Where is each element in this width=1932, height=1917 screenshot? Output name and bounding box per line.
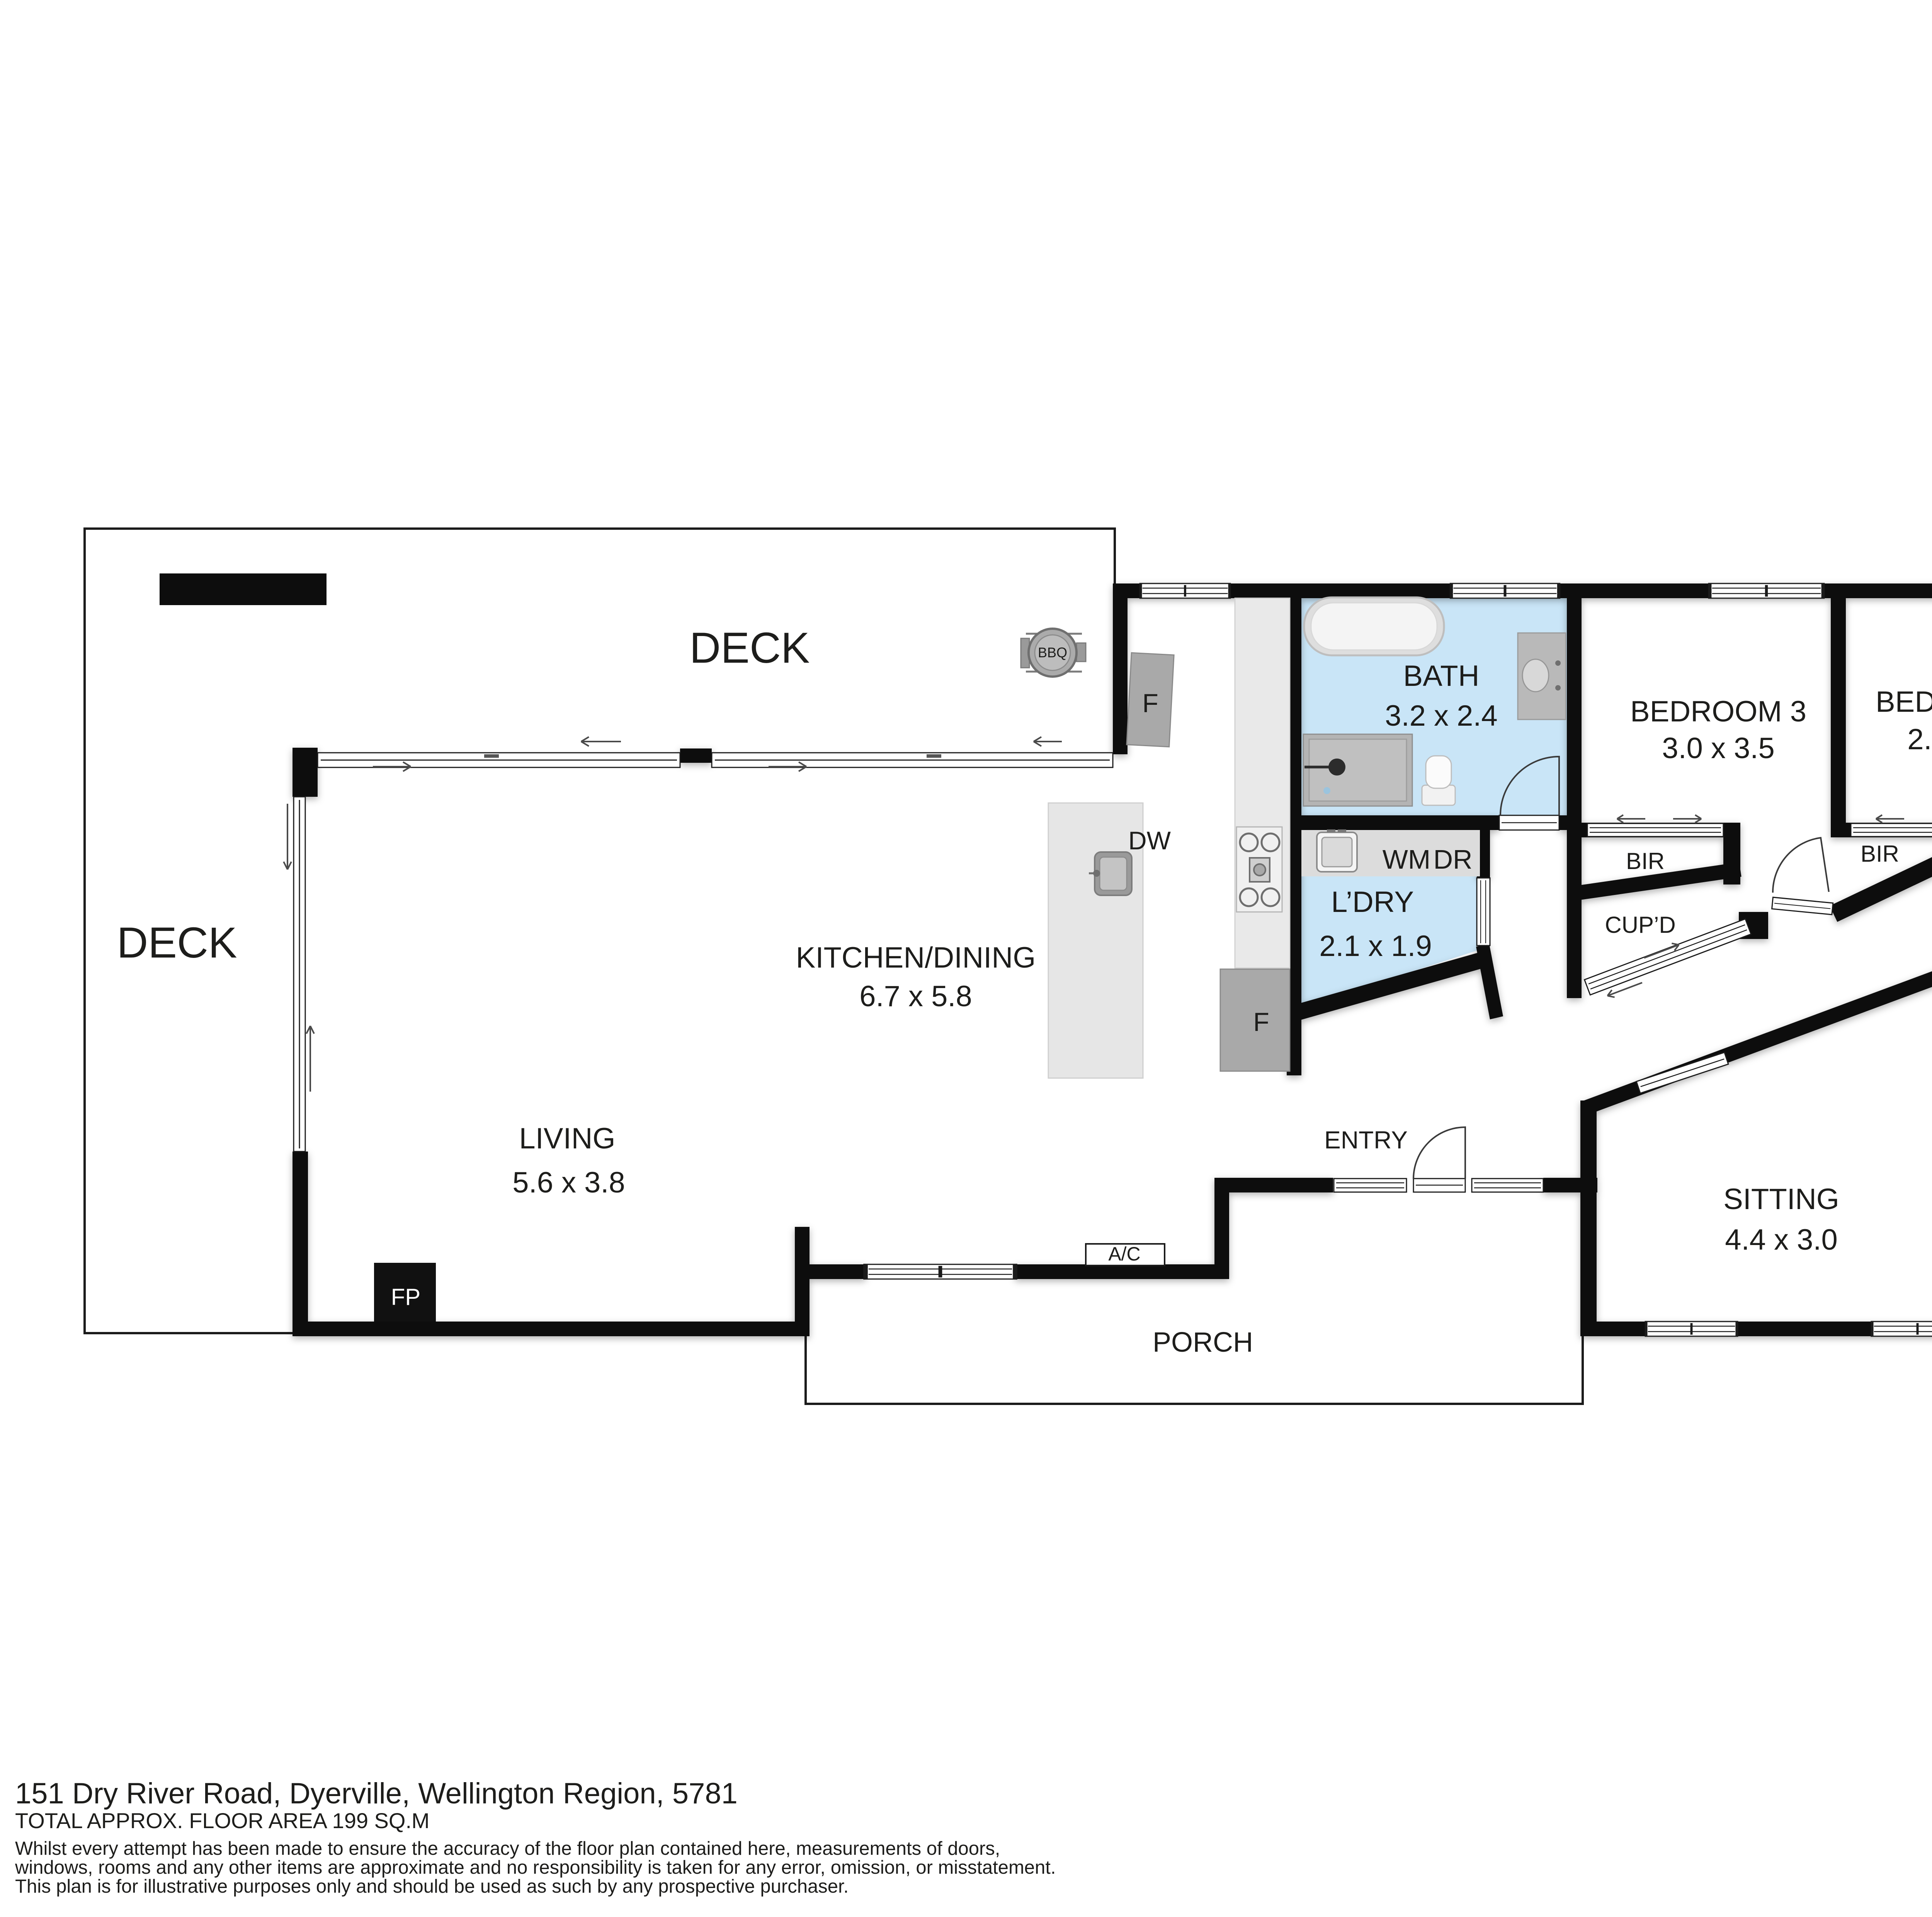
svg-text:CUP’D: CUP’D [1605, 912, 1675, 938]
svg-text:DECK: DECK [117, 919, 237, 967]
svg-text:3.2 x 2.4: 3.2 x 2.4 [1385, 699, 1498, 732]
svg-text:4.4 x 3.0: 4.4 x 3.0 [1725, 1223, 1838, 1256]
svg-text:2.7 x 2.9: 2.7 x 2.9 [1907, 723, 1932, 756]
svg-text:DECK: DECK [689, 624, 810, 672]
svg-text:A/C: A/C [1108, 1243, 1140, 1265]
svg-text:WM: WM [1383, 844, 1430, 874]
svg-text:DW: DW [1128, 826, 1171, 855]
svg-text:BEDROOM 3: BEDROOM 3 [1630, 695, 1806, 728]
svg-text:Whilst every attempt has been: Whilst every attempt has been made to en… [15, 1838, 1000, 1859]
svg-text:TOTAL APPROX. FLOOR AREA 199 S: TOTAL APPROX. FLOOR AREA 199 SQ.M [15, 1808, 430, 1833]
svg-text:BIR: BIR [1626, 848, 1665, 874]
svg-text:KITCHEN/DINING: KITCHEN/DINING [796, 941, 1036, 974]
svg-text:FP: FP [391, 1284, 421, 1310]
svg-text:F: F [1142, 689, 1158, 718]
svg-text:F: F [1253, 1007, 1269, 1037]
svg-text:BEDROOM 4: BEDROOM 4 [1876, 685, 1932, 718]
svg-text:SITTING: SITTING [1723, 1183, 1839, 1216]
svg-text:2.1 x 1.9: 2.1 x 1.9 [1319, 930, 1432, 963]
svg-text:windows, rooms and any other i: windows, rooms and any other items are a… [15, 1857, 1056, 1878]
svg-text:DR: DR [1433, 844, 1472, 874]
svg-text:ENTRY: ENTRY [1324, 1126, 1408, 1154]
svg-text:6.7 x 5.8: 6.7 x 5.8 [859, 980, 972, 1013]
svg-text:L’DRY: L’DRY [1331, 886, 1414, 919]
svg-text:BBQ: BBQ [1038, 645, 1067, 660]
svg-text:BATH: BATH [1403, 660, 1479, 692]
svg-text:This plan is for illustrative: This plan is for illustrative purposes o… [15, 1876, 849, 1897]
svg-text:151 Dry River Road, Dyerville,: 151 Dry River Road, Dyerville, Wellingto… [15, 1777, 738, 1810]
svg-text:BIR: BIR [1861, 841, 1899, 867]
svg-text:5.6 x 3.8: 5.6 x 3.8 [512, 1166, 625, 1199]
svg-text:3.0 x 3.5: 3.0 x 3.5 [1662, 732, 1775, 765]
svg-text:LIVING: LIVING [519, 1122, 615, 1155]
svg-text:PORCH: PORCH [1153, 1327, 1253, 1358]
